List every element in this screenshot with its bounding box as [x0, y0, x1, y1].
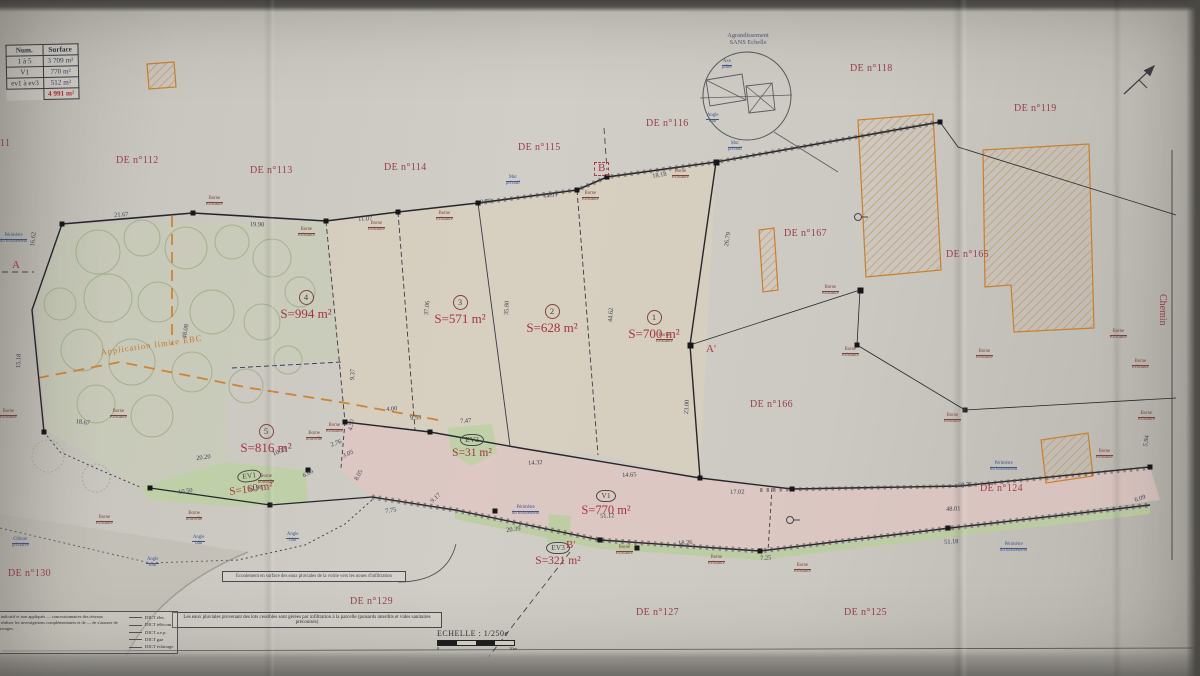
- neighbor-parcel-label: DE n°119: [1014, 104, 1057, 115]
- neighbor-parcel-label: DE n°116: [646, 119, 689, 130]
- neighbor-parcel-label: DE n°165: [946, 250, 989, 261]
- neighbor-parcel-label: DE n°114: [384, 163, 427, 174]
- neighbor-parcel-label: DE n°113: [250, 166, 293, 177]
- annotation-label: Borneexistante: [206, 197, 223, 208]
- dimension-label: 15.18: [16, 354, 23, 369]
- note-rainwater: Les eaux pluviales provenant des lots ce…: [172, 612, 442, 628]
- dimension-label: 51.12: [600, 513, 615, 520]
- dimension-label: 51.18: [944, 539, 959, 547]
- dimension-label: 9.37: [350, 369, 357, 381]
- annotation-label: Borneexistante: [0, 410, 17, 421]
- dimension-label: 14.32: [528, 460, 543, 468]
- detail-circle-label-top: Axepilier: [722, 60, 732, 71]
- annotation-label: Clôtureprivative: [12, 538, 29, 549]
- dict-legend: réseaux sont donnés à titre indicatif et…: [0, 611, 178, 654]
- annotation-label: Périmètredu lotissement: [0, 234, 27, 245]
- neighbor-parcel-label: 11: [0, 139, 10, 150]
- dimension-label: 21.67: [114, 212, 129, 220]
- note-leader: [398, 544, 456, 582]
- annotation-label: Borneexistante: [582, 192, 599, 203]
- dimension-label: 4.00: [386, 406, 398, 414]
- annotation-label: Anglebâti: [286, 533, 299, 544]
- detail-circle-label-bottom: Anglemur: [706, 114, 719, 125]
- annotation-label: Anglemur: [146, 558, 159, 569]
- parcel-label: 2 S=628 m²: [514, 302, 590, 336]
- annotation-label: Borneexistante: [672, 170, 689, 181]
- annotation-label: Borneexistante: [110, 410, 127, 421]
- annotation-label: Borneexistante: [842, 348, 859, 359]
- section-letter: B': [566, 540, 575, 552]
- photo-edge-right: [1186, 0, 1200, 676]
- dict-items: DICT élec. DICT télécom. DICT a.e.p. DIC…: [129, 614, 173, 651]
- annotation-label: Borneexistante: [1138, 412, 1155, 423]
- dimension-label: 19.90: [250, 222, 265, 229]
- annotation-label: Bornenouvelle: [258, 475, 274, 486]
- neighbor-parcel-label: DE n°167: [784, 229, 827, 240]
- annotation-label: Borneexistante: [944, 414, 961, 425]
- annotation-label: Périmètredu lotissement: [990, 462, 1017, 473]
- dict-paragraph: réseaux sont donnés à titre indicatif et…: [0, 614, 121, 651]
- parcel-label: EV2 S=31 m²: [434, 433, 510, 459]
- section-letter: B: [594, 162, 609, 176]
- neighbor-parcel-label: DE n°129: [350, 597, 393, 608]
- dimension-label: 48.01: [946, 506, 961, 513]
- neighbor-parcel-label: DE n°130: [8, 569, 51, 580]
- photo-edge-top: [0, 0, 1200, 12]
- annotation-label: Borneexistante: [656, 334, 673, 345]
- neighbor-parcel-label: DE n°125: [844, 608, 887, 619]
- annotation-label: Borneexistante: [96, 516, 113, 527]
- dimension-label: 9.53: [410, 415, 422, 423]
- section-letter: A': [706, 344, 716, 356]
- neighbor-parcel-label: DE n°127: [636, 608, 679, 619]
- detail-circle: [700, 52, 838, 172]
- scale-block: ECHELLE : 1/250e 0 10m: [437, 629, 517, 651]
- neighbor-parcel-label: DE n°115: [518, 143, 561, 154]
- dimension-label: 14.65: [622, 472, 637, 479]
- north-arrow-icon: [1124, 66, 1154, 94]
- dimension-label: 18.26: [678, 540, 693, 548]
- photo-edge-bottom: [0, 650, 1200, 676]
- parcel-label: 4 S=994 m²: [268, 288, 344, 322]
- dimension-label: 23.00: [684, 400, 692, 415]
- dimension-label: 7.25: [760, 555, 772, 562]
- annotation-label: Périmètredu lotissement: [1000, 543, 1027, 554]
- annotation-label: Borneexistante: [708, 556, 725, 567]
- neighbor-parcel-label: DE n°118: [850, 64, 893, 75]
- neighbor-parcel-label: DE n°124: [980, 484, 1023, 495]
- surface-table-header-surface: Surface: [42, 44, 77, 56]
- annotation-label: Bornenouvelle: [306, 432, 322, 443]
- annotation-label: Borneexistante: [976, 350, 993, 361]
- chemin-label: Chemin: [1157, 294, 1168, 326]
- parcel-label: EV3 S=321 m²: [520, 541, 596, 567]
- annotation-label: Borneexistante: [616, 546, 633, 557]
- scale-max: 10m: [509, 646, 517, 651]
- dimension-label: 35.80: [504, 301, 512, 316]
- annotation-label: Bornenouvelle: [186, 512, 202, 523]
- surface-total: 4 991 m²: [43, 88, 78, 100]
- annotation-label: Borneexistante: [1110, 330, 1127, 341]
- surface-table: Num. Surface 1 à 53 709 m² V1770 m² ev1 …: [5, 43, 79, 101]
- surface-table-header-num: Num.: [6, 44, 43, 56]
- annotation-label: Borneexistante: [368, 222, 385, 233]
- annotation-label: Borneexistante: [298, 228, 315, 239]
- annotation-label: Murprivatif: [728, 142, 742, 153]
- note-runoff: Ecoulement en surface des eaux pluviales…: [222, 571, 406, 582]
- parcel-label: 5 S=816 m²: [228, 422, 304, 456]
- annotation-label: Anglebâti: [192, 536, 205, 547]
- annotation-label: Borneexistante: [1096, 450, 1113, 461]
- survey-point-symbols: [787, 214, 869, 524]
- annotation-label: Périmètredu lotissement: [512, 506, 539, 517]
- detail-circle-title: Agrandissement SANS Echelle: [703, 32, 793, 46]
- survey-plan-photo: Num. Surface 1 à 53 709 m² V1770 m² ev1 …: [0, 0, 1200, 676]
- annotation-label: Murprivatif: [506, 176, 520, 187]
- annotation-label: Borneexistante: [326, 424, 343, 435]
- scale-min: 0: [437, 646, 439, 651]
- paper-fold: [952, 0, 968, 676]
- neighbor-parcel-label: DE n°112: [116, 156, 159, 167]
- neighbor-parcel-label: DE n°166: [750, 400, 793, 411]
- dimension-label: 17.02: [730, 489, 745, 496]
- parcel-label: 3 S=571 m²: [422, 293, 498, 327]
- dimension-label: 44.62: [608, 308, 616, 323]
- annotation-label: Borneexistante: [794, 564, 811, 575]
- annotation-label: Borneexistante: [822, 286, 839, 297]
- dimension-label: 60.75: [958, 482, 973, 489]
- parcel-label: 1 S=700 m²: [616, 308, 692, 342]
- annotation-label: Borneexistante: [1132, 360, 1149, 371]
- dimension-label: 7.47: [460, 418, 472, 425]
- scale-title: ECHELLE : 1/250e: [437, 629, 517, 638]
- annotation-label: Borneexistante: [436, 212, 453, 223]
- dimension-label: 9.75: [480, 199, 492, 207]
- section-letter: A: [12, 260, 20, 272]
